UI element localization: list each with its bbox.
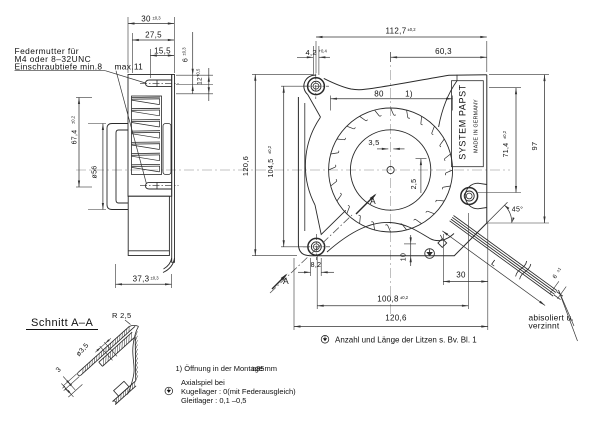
svg-text:A: A bbox=[370, 196, 376, 206]
svg-text:4,2: 4,2 bbox=[306, 48, 317, 57]
svg-text:120,6: 120,6 bbox=[385, 314, 407, 323]
svg-text:8,2: 8,2 bbox=[311, 262, 322, 269]
svg-text:112,7: 112,7 bbox=[386, 27, 407, 36]
svg-text:3,5: 3,5 bbox=[368, 138, 379, 147]
svg-text:27,5: 27,5 bbox=[145, 31, 162, 40]
svg-text:Kugellager : 0(mit Federausgle: Kugellager : 0(mit Federausgleich) bbox=[181, 387, 296, 396]
svg-text:≥85mm: ≥85mm bbox=[252, 364, 277, 373]
svg-text:R 2,5: R 2,5 bbox=[112, 311, 131, 320]
svg-text:Anzahl und Länge der Litzen s.: Anzahl und Länge der Litzen s. Bv. Bl. 1 bbox=[335, 335, 477, 344]
svg-text:SYSTEM PAPST: SYSTEM PAPST bbox=[458, 84, 468, 160]
svg-text:Schnitt A–A: Schnitt A–A bbox=[31, 317, 94, 329]
svg-text:±0,2: ±0,2 bbox=[267, 145, 272, 154]
svg-text:71,4: 71,4 bbox=[503, 143, 510, 158]
svg-text:1) Öffnung in der Montage: 1) Öffnung in der Montage bbox=[176, 364, 263, 373]
svg-text:±0,2: ±0,2 bbox=[502, 130, 507, 139]
svg-text:12: 12 bbox=[197, 77, 204, 85]
svg-text:1): 1) bbox=[405, 89, 413, 98]
svg-text:120,6: 120,6 bbox=[241, 156, 250, 176]
svg-text:Axialspiel bei: Axialspiel bei bbox=[181, 378, 225, 387]
svg-text:6: 6 bbox=[183, 58, 190, 62]
svg-text:104,5: 104,5 bbox=[268, 158, 275, 177]
svg-text:±0,3: ±0,3 bbox=[182, 47, 187, 56]
svg-text:10: 10 bbox=[401, 253, 408, 261]
svg-text:max.11: max.11 bbox=[115, 62, 144, 72]
svg-text:A: A bbox=[283, 276, 289, 286]
svg-text:2,5: 2,5 bbox=[411, 179, 418, 190]
svg-text:+0,5: +0,5 bbox=[196, 68, 201, 77]
svg-text:15,5: 15,5 bbox=[154, 47, 171, 56]
svg-text:±0,3: ±0,3 bbox=[151, 276, 160, 281]
svg-text:60,3: 60,3 bbox=[435, 47, 452, 56]
svg-text:30: 30 bbox=[456, 271, 466, 280]
svg-text:±0,3: ±0,3 bbox=[153, 16, 162, 21]
svg-text:67,4: 67,4 bbox=[72, 130, 79, 145]
svg-text:+0,4: +0,4 bbox=[319, 49, 328, 54]
svg-text:45°: 45° bbox=[512, 206, 524, 214]
svg-text:±0,2: ±0,2 bbox=[71, 115, 76, 124]
svg-text:±0,2: ±0,2 bbox=[408, 27, 417, 32]
svg-text:100,8: 100,8 bbox=[377, 295, 399, 304]
svg-text:ø56: ø56 bbox=[92, 166, 99, 179]
svg-text:80: 80 bbox=[374, 89, 384, 98]
svg-text:Einschraubtiefe min.8: Einschraubtiefe min.8 bbox=[15, 62, 103, 72]
svg-text:MADE IN GERMANY: MADE IN GERMANY bbox=[474, 99, 480, 153]
svg-text:verzinnt: verzinnt bbox=[529, 321, 560, 331]
svg-text:97: 97 bbox=[530, 142, 539, 151]
svg-text:±0,2: ±0,2 bbox=[400, 295, 409, 300]
svg-text:30: 30 bbox=[141, 15, 151, 24]
svg-text:37,3: 37,3 bbox=[133, 275, 150, 284]
svg-text:Gleitlager : 0,1 –0,5: Gleitlager : 0,1 –0,5 bbox=[181, 396, 246, 405]
